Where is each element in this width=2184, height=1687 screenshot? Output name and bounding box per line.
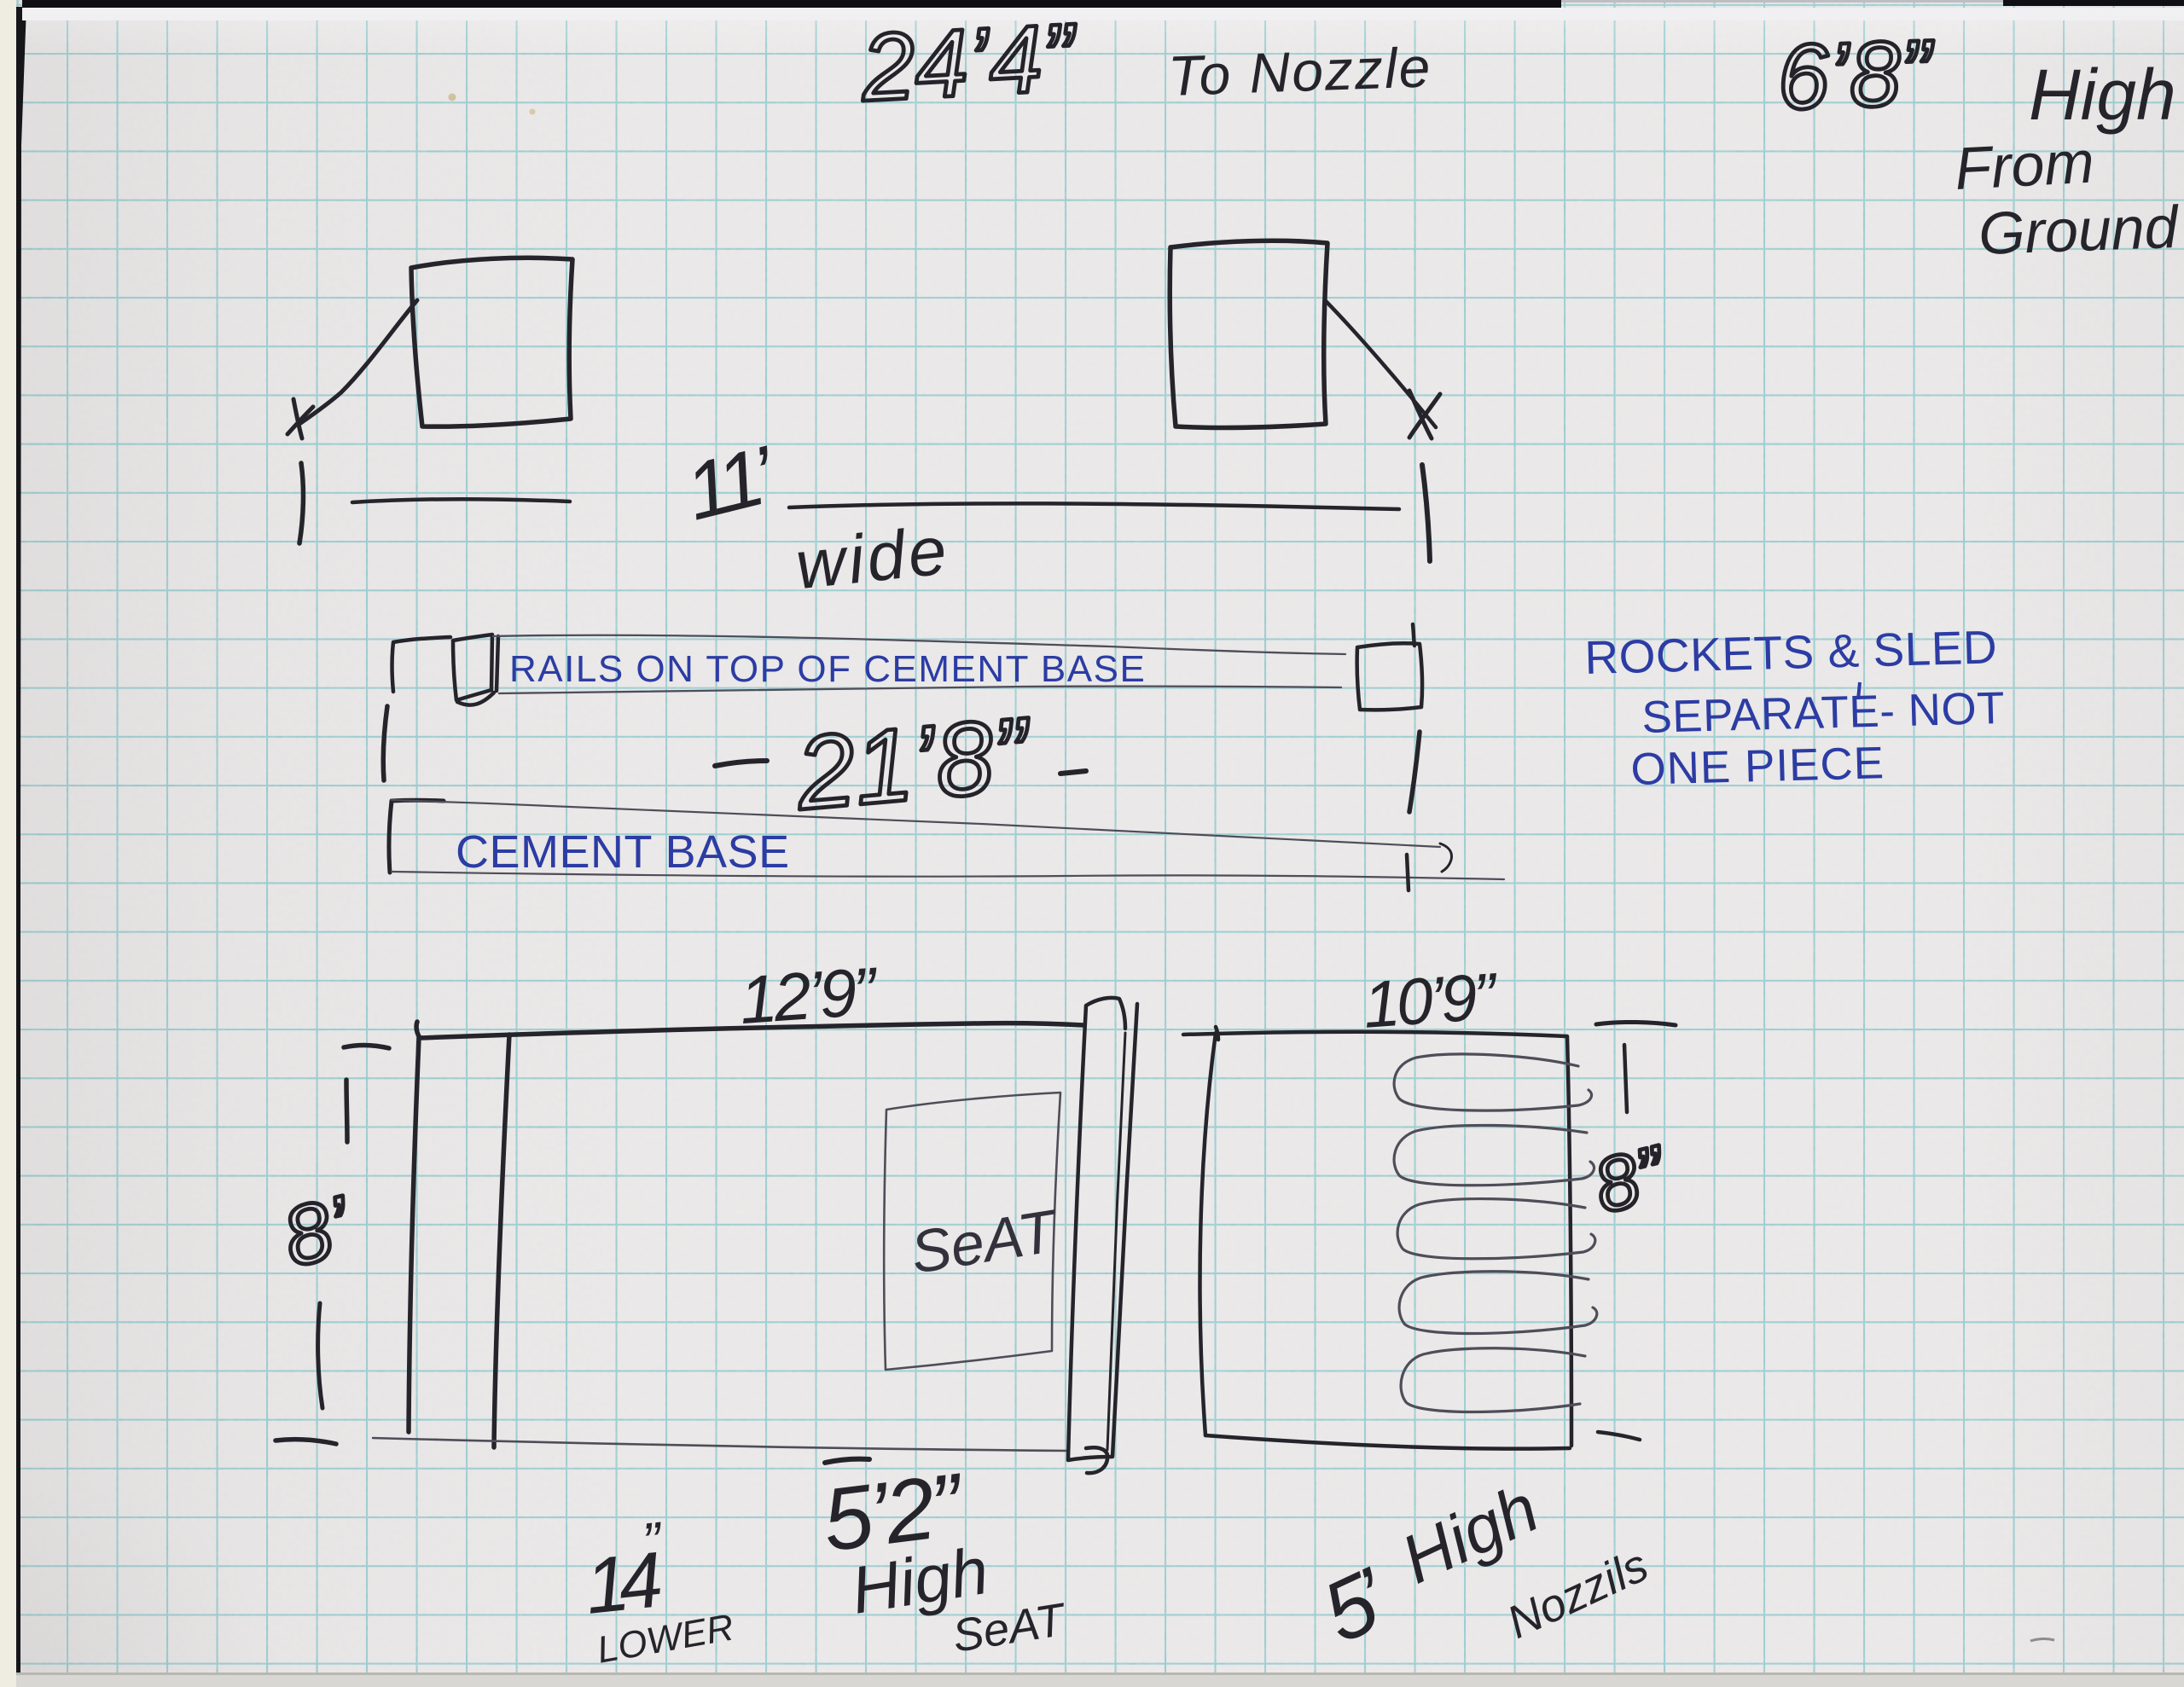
- svg-text:To Nozzle: To Nozzle: [1167, 35, 1432, 107]
- svg-text:RAILS ON TOP OF CEMENT BASE: RAILS ON TOP OF CEMENT BASE: [509, 648, 1146, 690]
- svg-text:wide: wide: [792, 512, 953, 603]
- svg-text:From: From: [1953, 129, 2095, 202]
- svg-text:CEMENT BASE: CEMENT BASE: [456, 826, 790, 878]
- svg-text:ONE PIECE: ONE PIECE: [1630, 738, 1885, 795]
- svg-text:10’9”: 10’9”: [1361, 959, 1501, 1042]
- svg-text:6’8”: 6’8”: [1776, 20, 1937, 129]
- svg-text:SEPARATE- NOT: SEPARATE- NOT: [1641, 683, 2006, 743]
- svg-text:ROCKETS & SLED: ROCKETS & SLED: [1584, 620, 1998, 684]
- svg-text:21’8”: 21’8”: [791, 695, 1037, 832]
- svg-text:High: High: [2029, 55, 2176, 135]
- svg-text:24’4”: 24’4”: [858, 3, 1081, 121]
- svg-text:Ground: Ground: [1978, 194, 2181, 267]
